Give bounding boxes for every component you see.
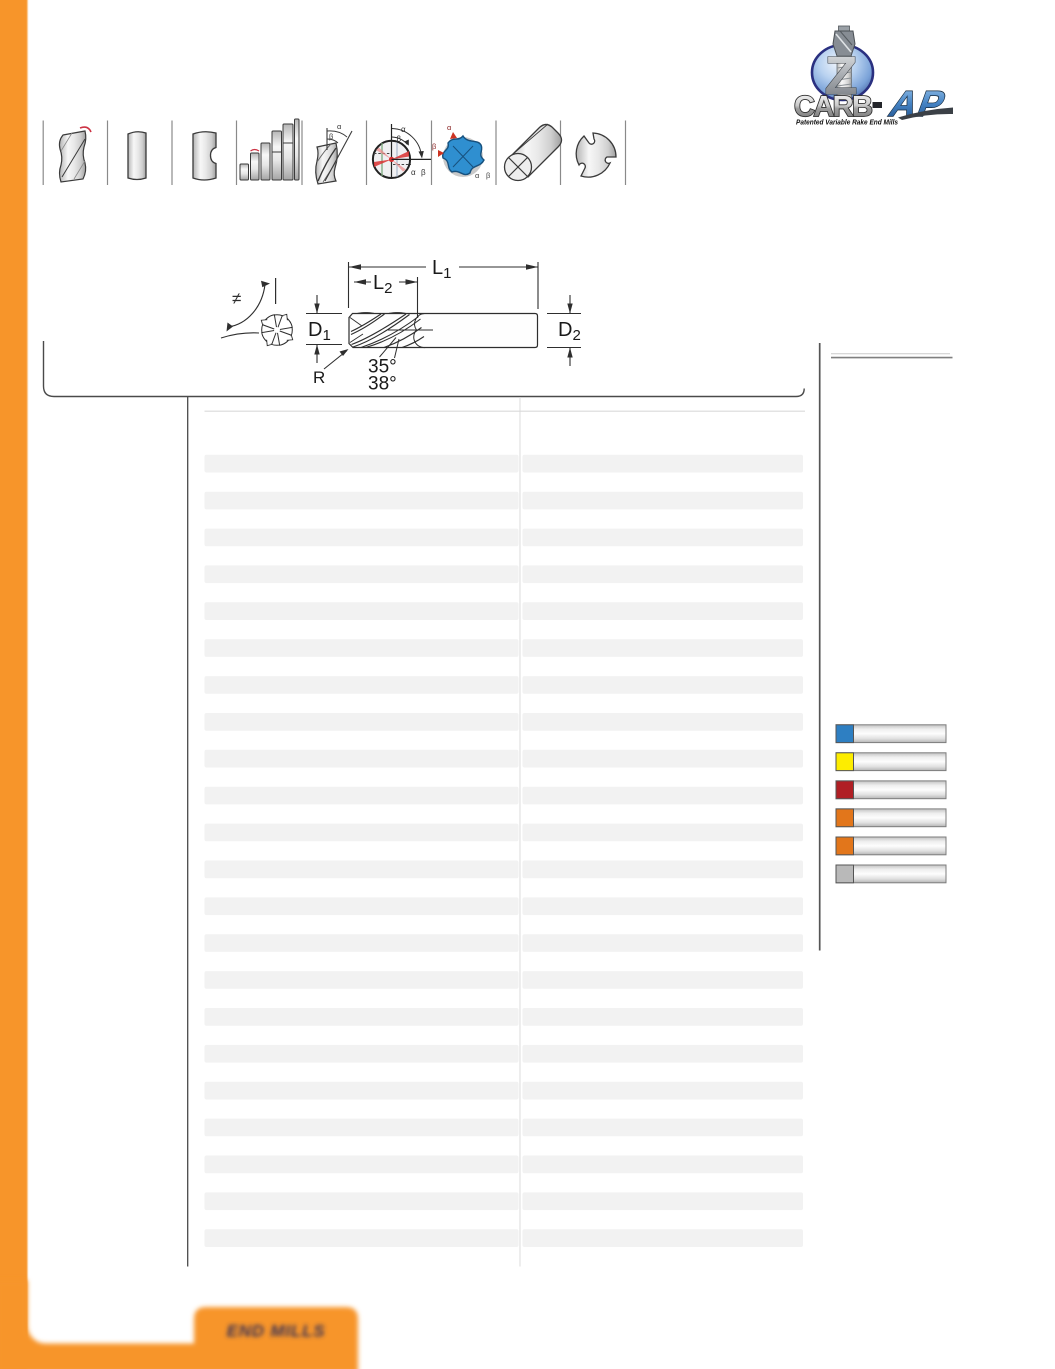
svg-text:α: α [411,168,416,177]
svg-text:α: α [475,171,480,180]
svg-text:β: β [329,132,334,141]
svg-text:END MILLS: END MILLS [227,1322,326,1341]
svg-text:R: R [313,368,325,387]
svg-text:β: β [421,168,426,177]
svg-text:α: α [337,122,342,131]
svg-text:38°: 38° [368,374,397,395]
svg-text:β: β [486,171,491,180]
svg-text:≠: ≠ [232,289,241,308]
svg-text:α: α [447,123,452,132]
svg-text:Patented Variable Rake End Mil: Patented Variable Rake End Mills [796,118,898,127]
svg-text:α: α [401,125,406,134]
svg-text:β: β [432,142,437,151]
svg-text:β: β [397,135,402,144]
